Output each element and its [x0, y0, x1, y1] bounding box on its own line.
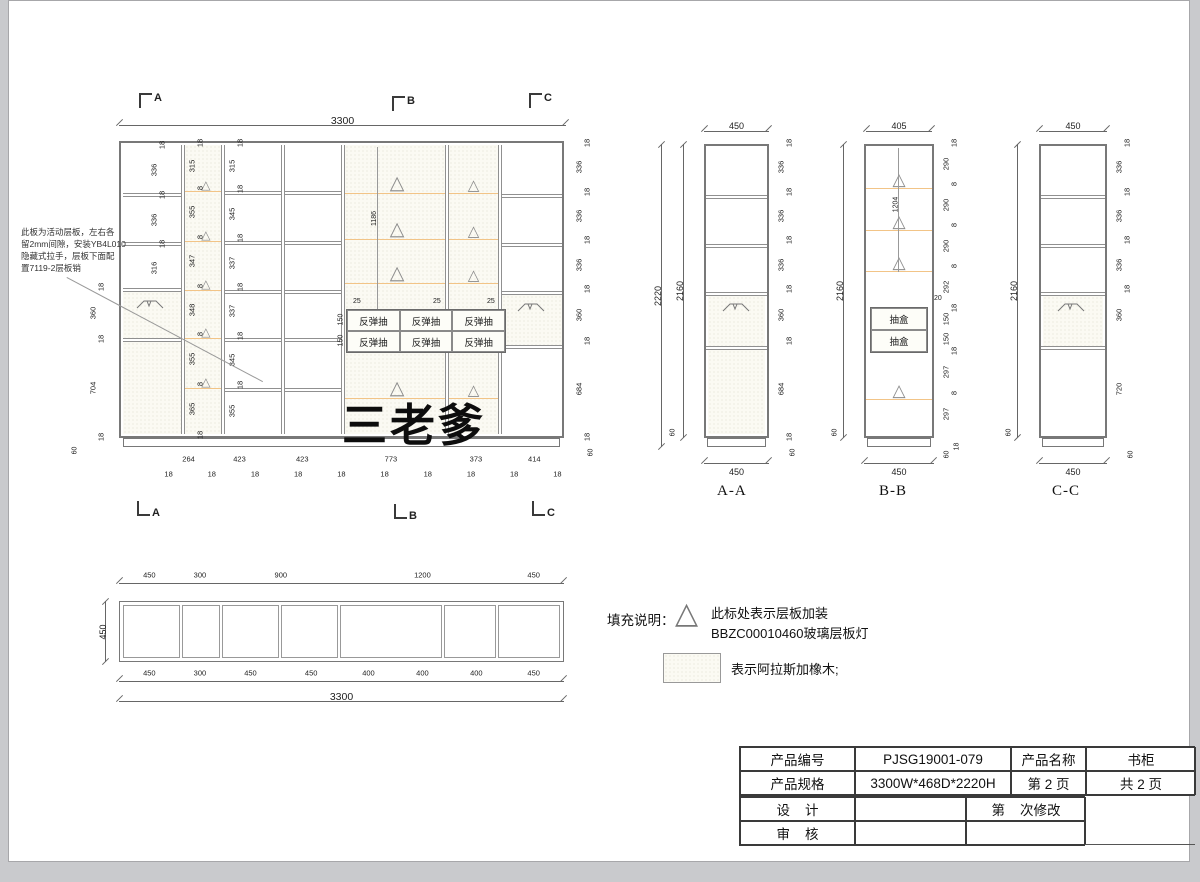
dim-label: 336 — [1115, 258, 1123, 271]
dim-label: 773 — [385, 455, 398, 463]
dim-label: 373 — [470, 455, 483, 463]
legend-triangle-icon — [675, 599, 698, 629]
cc-bottom-dim: 450 — [1065, 467, 1080, 477]
dim-label: 337 — [228, 256, 236, 269]
glass-shelf-triangle-icon — [892, 171, 905, 188]
dim-label: 336 — [777, 258, 785, 271]
plan-bottom-dimline — [119, 681, 564, 682]
dim-label: 18 — [1123, 236, 1131, 244]
dim-label: 18 — [510, 470, 518, 478]
dim-label: 400 — [470, 669, 483, 677]
dim-label: 290 — [942, 199, 950, 212]
rebound-drawer: 反弹抽 — [400, 310, 453, 331]
dim-label: 450 — [527, 669, 540, 677]
rebound-drawer-block: 反弹抽 反弹抽 反弹抽 反弹抽 反弹抽 反弹抽 — [346, 309, 506, 353]
title-block-lower: 设 计 第 次修改 审 核 — [739, 796, 1085, 846]
dim-label: 704 — [89, 381, 97, 394]
elevation-total-width: 3300 — [331, 115, 354, 127]
bb-right-dims: 1829082908290829218150150182978297 — [938, 142, 954, 434]
dim-label: 316 — [150, 262, 158, 275]
dim-label: 18 — [583, 139, 591, 147]
watermark-text: 三老爹 — [342, 389, 486, 454]
elevation-col7 — [502, 145, 562, 434]
dim-label: 347 — [188, 255, 196, 268]
dim-label: 360 — [777, 308, 785, 321]
dim-label: 336 — [1115, 161, 1123, 174]
rebound-drawer: 反弹抽 — [452, 310, 505, 331]
dim-label: 18 — [785, 139, 793, 147]
dim-label: 8 — [196, 283, 204, 287]
shelf-note: 此板为活动层板，左右各 留2mm间隙，安装YB4L010 隐藏式拉手，层板下面配… — [21, 227, 141, 275]
dim-label: 18 — [97, 334, 105, 342]
glass-shelf-triangle-icon — [468, 178, 480, 193]
cc-height-dimline: 2160 — [1017, 144, 1018, 438]
dim-label: 345 — [228, 207, 236, 220]
dim-label: 18 — [164, 470, 172, 478]
dim-label: 18 — [97, 433, 105, 441]
dim-label: 8 — [196, 381, 204, 385]
dim-label: 450 — [527, 571, 540, 579]
dim-label: 18 — [236, 185, 244, 193]
dim-label: 18 — [236, 283, 244, 291]
dim-label: 18 — [1123, 139, 1131, 147]
tb-page-total: 共 2 页 — [1086, 771, 1196, 795]
bb-top-dimline: 405 — [866, 131, 932, 132]
dim-label: 336 — [575, 258, 583, 271]
dim-label: 18 — [158, 240, 166, 248]
plan-bottom-dims: 450300450450400400400450 — [119, 667, 564, 679]
plan-cell — [123, 605, 180, 658]
dim-label: 360 — [1115, 308, 1123, 321]
rail-bracket-icon — [517, 301, 545, 312]
dim-label: 18 — [583, 188, 591, 196]
section-bb-body: 1204 — [864, 144, 934, 438]
dim-label: 18 — [950, 304, 958, 312]
dim-label: 18 — [1123, 188, 1131, 196]
section-marker-c-top-icon: C — [529, 93, 542, 108]
dim-label: 336 — [150, 164, 158, 177]
dim-label: 18 — [251, 470, 259, 478]
tb-design-value — [855, 797, 966, 821]
dim-label: 18 — [785, 188, 793, 196]
rail-bracket-icon — [1057, 301, 1085, 312]
section-marker-b-top-icon: B — [392, 96, 405, 111]
title-block-upper: 产品编号 PJSG19001-079 产品名称 书柜 产品规格 3300W*46… — [739, 746, 1195, 796]
shelf-note-line: 留2mm间隙，安装YB4L010 — [21, 239, 141, 251]
elevation-mid-height-dimline — [377, 147, 378, 309]
aa-outer-height-dimline: 2220 — [661, 144, 662, 447]
aa-outer-height: 2220 — [653, 285, 663, 305]
dim-label: 18 — [158, 141, 166, 149]
plan-cell — [444, 605, 496, 658]
rebound-drawer: 反弹抽 — [347, 310, 400, 331]
glass-shelf-triangle-icon — [892, 254, 905, 271]
dim-label: 18 — [583, 336, 591, 344]
aa-inner-height-dimline: 2160 — [683, 144, 684, 438]
dim-label: 18 — [785, 285, 793, 293]
dim-label: 18 — [583, 433, 591, 441]
bb-drawer-box-block: 抽盒 抽盒 — [870, 307, 928, 353]
dim-label: 450 — [305, 669, 318, 677]
dim-label: 315 — [228, 160, 236, 173]
section-marker-c-label: C — [544, 92, 552, 104]
elevation-col2-dims: 183158355834783488355836518 — [185, 142, 199, 436]
elevation-col4 — [285, 145, 341, 434]
bb-bottom-dim: 450 — [891, 467, 906, 477]
section-marker-b-label: B — [409, 510, 417, 522]
bb-mid-height: 1204 — [892, 197, 899, 213]
dim-label: 8 — [196, 235, 204, 239]
dim-label: 18 — [236, 234, 244, 242]
dim-label: 18 — [583, 285, 591, 293]
rail-bracket-icon — [136, 298, 164, 309]
elevation-plinth-dim: 60 — [587, 449, 594, 457]
dim-label: 290 — [942, 158, 950, 171]
frame-bottom-line — [1085, 844, 1195, 845]
section-marker-a-label: A — [154, 92, 162, 104]
section-aa-title: A-A — [717, 483, 747, 500]
section-marker-c-label: C — [547, 507, 555, 519]
drawing-canvas: { "watermark": "三老爹", "note": { "lines":… — [0, 0, 1200, 882]
drawer-gap-dim: 25 — [487, 298, 495, 305]
dim-label: 337 — [228, 305, 236, 318]
dim-label: 900 — [275, 571, 288, 579]
dim-label: 18 — [950, 139, 958, 147]
tb-audit-label: 审 核 — [740, 821, 855, 845]
aa-bottom-dim: 450 — [729, 467, 744, 477]
section-marker-c-bottom-icon: C — [532, 501, 545, 516]
section-aa-body — [704, 144, 769, 438]
legend-oak-swatch — [663, 653, 721, 683]
rebound-drawer: 反弹抽 — [452, 331, 505, 352]
dim-label: 18 — [97, 283, 105, 291]
dim-label: 365 — [188, 403, 196, 416]
bb-height-dimline: 2160 — [843, 144, 844, 438]
dim-label: 150 — [942, 333, 950, 346]
dim-label: 18 — [236, 139, 244, 147]
rebound-drawer: 反弹抽 — [347, 331, 400, 352]
section-marker-a-top-icon: A — [139, 93, 152, 108]
tb-spec-value: 3300W*468D*2220H — [855, 771, 1011, 795]
bb-plinth-dim: 60 — [831, 429, 838, 437]
glass-shelf-triangle-icon — [468, 224, 480, 239]
dim-label: 355 — [188, 353, 196, 366]
bb-top-dim: 405 — [891, 121, 906, 131]
dim-label: 336 — [777, 210, 785, 223]
plan-total-dimline: 3300 — [119, 701, 564, 702]
tb-revision-value — [966, 821, 1086, 845]
dim-label: 18 — [785, 236, 793, 244]
dim-label: 264 — [182, 455, 195, 463]
aa-inner-height: 2160 — [675, 281, 685, 301]
dim-label: 18 — [337, 470, 345, 478]
cc-top-dimline: 450 — [1039, 131, 1107, 132]
section-bb-title: B-B — [879, 483, 907, 500]
aa-plinth-dim-right: 60 — [789, 449, 796, 457]
dim-label: 8 — [196, 186, 204, 190]
dim-label: 150 — [942, 313, 950, 326]
plan-cell — [498, 605, 560, 658]
dim-label: 450 — [143, 571, 156, 579]
legend-item1-line2: BBZC00010460玻璃层板灯 — [711, 623, 869, 642]
dim-label: 18 — [785, 433, 793, 441]
rebound-drawer: 反弹抽 — [400, 331, 453, 352]
elevation-total-width-dimline: 3300 — [119, 125, 566, 126]
tb-product-no-value: PJSG19001-079 — [855, 747, 1011, 771]
plan-depth-dim: 450 — [98, 624, 108, 639]
glass-shelf-triangle-icon — [892, 382, 905, 399]
cc-plinth-dim-right: 60 — [1127, 451, 1134, 459]
cc-height: 2160 — [1009, 281, 1019, 301]
dim-label: 18 — [424, 470, 432, 478]
dim-label: 684 — [575, 382, 583, 395]
dim-label: 18 — [158, 191, 166, 199]
aa-oak-door — [708, 350, 765, 434]
dim-label: 18 — [1123, 285, 1131, 293]
elevation-right-dims: 183361833618336183601868418 — [571, 142, 587, 438]
dim-label: 360 — [575, 308, 583, 321]
dim-label: 8 — [950, 223, 958, 227]
dim-label: 18 — [467, 470, 475, 478]
dim-label: 8 — [950, 182, 958, 186]
dim-label: 336 — [575, 210, 583, 223]
dim-label: 18 — [583, 236, 591, 244]
dim-label: 290 — [942, 240, 950, 253]
plan-depth-dimline: 450 — [105, 601, 106, 662]
section-marker-a-label: A — [152, 507, 160, 519]
dim-label: 423 — [233, 455, 246, 463]
section-cc-body — [1039, 144, 1107, 438]
bb-bottom-18: 18 — [953, 443, 960, 451]
section-marker-b-label: B — [407, 95, 415, 107]
dim-label: 414 — [528, 455, 541, 463]
dim-label: 18 — [950, 347, 958, 355]
dim-label: 18 — [196, 431, 204, 439]
dim-label: 18 — [196, 139, 204, 147]
drawer-gap-dim: 25 — [433, 298, 441, 305]
dim-label: 18 — [380, 470, 388, 478]
dim-label: 18 — [785, 336, 793, 344]
legend-item2: 表示阿拉斯加橡木; — [731, 659, 839, 678]
dim-label: 336 — [150, 213, 158, 226]
plan-cell — [340, 605, 442, 658]
dim-label: 720 — [1115, 382, 1123, 395]
tb-product-no-label: 产品编号 — [740, 747, 855, 771]
elevation-mid-height: 1186 — [371, 211, 378, 226]
section-marker-b-bottom-icon: B — [394, 504, 407, 519]
tb-spec-label: 产品规格 — [740, 771, 855, 795]
tb-audit-value — [855, 821, 966, 845]
bb-notch-dim: 20 — [934, 295, 942, 302]
dim-label: 684 — [777, 382, 785, 395]
elevation-bottom-dims: 264423423773373414 — [169, 453, 565, 465]
drawer-box: 抽盒 — [871, 308, 927, 330]
dim-label: 336 — [777, 161, 785, 174]
dim-label: 450 — [143, 669, 156, 677]
dim-label: 360 — [89, 307, 97, 320]
dim-label: 355 — [188, 206, 196, 219]
aa-right-dims: 183361833618336183601868418 — [773, 142, 789, 438]
dim-label: 297 — [942, 408, 950, 421]
legend-title: 填充说明： — [607, 609, 675, 629]
plan-body — [119, 601, 564, 662]
dim-label: 18 — [236, 381, 244, 389]
shelf-note-line: 隐藏式拉手，层板下面配 — [21, 251, 141, 263]
dim-label: 336 — [1115, 210, 1123, 223]
aa-plinth-dim: 60 — [669, 429, 676, 437]
dim-label: 300 — [194, 669, 207, 677]
elevation-bottom-wall-dims: 18181818181818181818 — [147, 468, 579, 480]
dim-label: 292 — [942, 281, 950, 294]
drawer-height-dim: 150 — [337, 335, 344, 347]
bb-plinth — [867, 438, 931, 447]
shelf-note-line: 此板为活动层板，左右各 — [21, 227, 141, 239]
dim-label: 348 — [188, 304, 196, 317]
legend-item1-line1: 此标处表示层板加装 — [711, 603, 828, 622]
plan-top-dims: 4503009001200450 — [119, 569, 564, 581]
tb-product-name-value: 书柜 — [1086, 747, 1196, 771]
cc-plinth-dim: 60 — [1005, 429, 1012, 437]
glass-shelf-triangle-icon — [468, 268, 480, 283]
drawer-gap-dim: 25 — [353, 298, 361, 305]
tb-page-no: 第 2 页 — [1011, 771, 1086, 795]
cc-right-dims: 18336183361833618360720 — [1111, 142, 1127, 438]
elevation-col1-dims: 183361833618316 — [147, 144, 161, 290]
cc-bottom-dimline: 450 — [1039, 463, 1107, 464]
dim-label: 297 — [942, 366, 950, 379]
dim-label: 336 — [575, 161, 583, 174]
glass-shelf-triangle-icon — [390, 174, 405, 193]
bb-plinth-dim-right: 60 — [943, 451, 950, 459]
cc-plinth — [1042, 438, 1104, 447]
dim-label: 8 — [950, 264, 958, 268]
elevation-col1-oak-door — [123, 342, 181, 434]
cc-top-dim: 450 — [1065, 121, 1080, 131]
glass-shelf-triangle-icon — [390, 264, 405, 283]
dim-label: 18 — [294, 470, 302, 478]
aa-top-dimline: 450 — [704, 131, 769, 132]
aa-bottom-dimline: 450 — [704, 463, 769, 464]
rail-bracket-icon — [722, 301, 750, 312]
plan-cell — [182, 605, 220, 658]
tb-revision-label: 第 次修改 — [966, 797, 1086, 821]
aa-top-dim: 450 — [729, 121, 744, 131]
dim-label: 1200 — [414, 571, 431, 579]
bb-bottom-dimline: 450 — [864, 463, 934, 464]
dim-label: 8 — [196, 332, 204, 336]
section-cc-title: C-C — [1052, 483, 1080, 500]
plan-total-dim: 3300 — [330, 691, 353, 703]
plan-top-dimline — [119, 583, 564, 584]
plan-cell — [281, 605, 338, 658]
dim-label: 423 — [296, 455, 309, 463]
dim-label: 300 — [194, 571, 207, 579]
shelf-note-line: 置7119-2层板销 — [21, 263, 141, 275]
bb-height: 2160 — [835, 281, 845, 301]
dim-label: 450 — [244, 669, 257, 677]
drawer-height-dim: 150 — [337, 314, 344, 326]
dim-label: 355 — [228, 404, 236, 417]
drawing-sheet: A B C 3300 — [8, 0, 1190, 862]
dim-label: 400 — [416, 669, 429, 677]
aa-plinth — [707, 438, 766, 447]
tb-product-name-label: 产品名称 — [1011, 747, 1086, 771]
glass-shelf-triangle-icon — [892, 213, 905, 230]
drawer-box: 抽盒 — [871, 330, 927, 352]
elevation-col3-dims: 183151834518337183371834518355 — [225, 142, 239, 435]
glass-shelf-triangle-icon — [390, 220, 405, 239]
plan-cell — [222, 605, 279, 658]
section-marker-a-bottom-icon: A — [137, 501, 150, 516]
dim-label: 18 — [208, 470, 216, 478]
dim-label: 315 — [188, 159, 196, 172]
dim-label: 8 — [950, 391, 958, 395]
dim-label: 18 — [553, 470, 561, 478]
elevation-plinth-dim: 60 — [71, 447, 78, 455]
tb-design-label: 设 计 — [740, 797, 855, 821]
elevation-left-dims: 183601870418 — [85, 286, 101, 438]
dim-label: 18 — [236, 331, 244, 339]
dim-label: 400 — [362, 669, 375, 677]
